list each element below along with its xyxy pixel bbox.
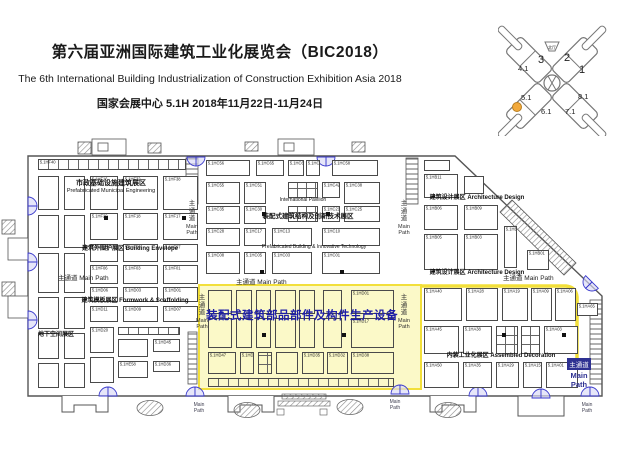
exhibition-floorplan-image: 第六届亚洲国际建筑工业化展览会（BIC2018） The 6th Interna… (0, 0, 640, 452)
zone-label: International Pavilion (268, 198, 338, 203)
zone-label: Prefabricated Municipal Engineering (16, 189, 206, 195)
main-path-label-vertical: 主通道MainPath (396, 294, 412, 330)
main-path-label: 主通道 Main Path (236, 276, 287, 286)
column-marker (326, 212, 330, 216)
main-path-label: 主通道 Main Path (503, 272, 554, 282)
main-path-label-small: MainPath (574, 403, 600, 414)
column-marker (262, 212, 266, 216)
zone-label: 建筑设计展区 Architecture Design (414, 195, 540, 201)
main-path-label-vertical: 主通道MainPath (396, 200, 412, 236)
column-marker (104, 216, 108, 220)
column-marker (342, 333, 346, 337)
main-path-badge: 主通道MainPath (564, 354, 594, 389)
zone-label: 建筑模板展区 Formwork & Scaffolding (60, 298, 210, 304)
zone-label: 市政基础设施建筑展区 (36, 180, 186, 187)
column-marker (340, 270, 344, 274)
main-path-label-vertical: 主通道MainPath (194, 294, 210, 330)
column-marker (260, 270, 264, 274)
column-marker (262, 333, 266, 337)
zone-label: 建筑外围护展区 Building Envelope (55, 246, 205, 252)
main-path-label-small: MainPath (186, 403, 212, 414)
zone-label: Prefabricated Building & Innovative Tech… (236, 245, 392, 250)
column-marker (502, 333, 506, 337)
highlight-zone-title: 装配式建筑部品部件及构件生产设备 (206, 307, 398, 323)
main-path-label-small: MainPath (382, 400, 408, 411)
main-path-label: 主通道 Main Path (58, 272, 109, 282)
zone-label: 内装工业化展区 Assembled Decoration (434, 353, 568, 359)
zone-label: 地下空间展区 (30, 332, 82, 338)
label-layer: 装配式建筑部品部件及构件生产设备 市政基础设施建筑展区Prefabricated… (0, 0, 640, 452)
column-marker (562, 333, 566, 337)
main-path-label-vertical: 主通道MainPath (184, 200, 200, 236)
